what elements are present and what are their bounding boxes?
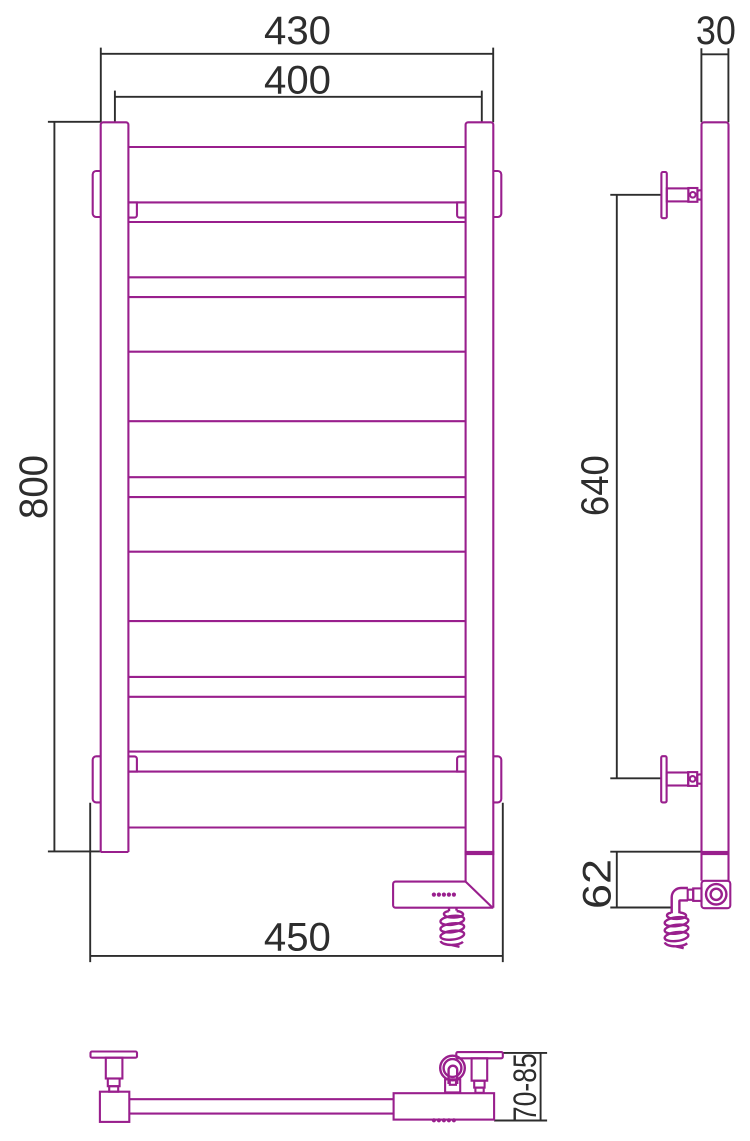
svg-text:430: 430	[264, 9, 331, 53]
svg-text:640: 640	[574, 455, 617, 516]
svg-text:450: 450	[264, 915, 331, 959]
svg-text:400: 400	[264, 59, 331, 103]
svg-text:70-85: 70-85	[507, 1053, 543, 1121]
svg-text:800: 800	[12, 455, 56, 519]
svg-text:62: 62	[575, 859, 619, 909]
svg-text:30: 30	[696, 9, 736, 53]
